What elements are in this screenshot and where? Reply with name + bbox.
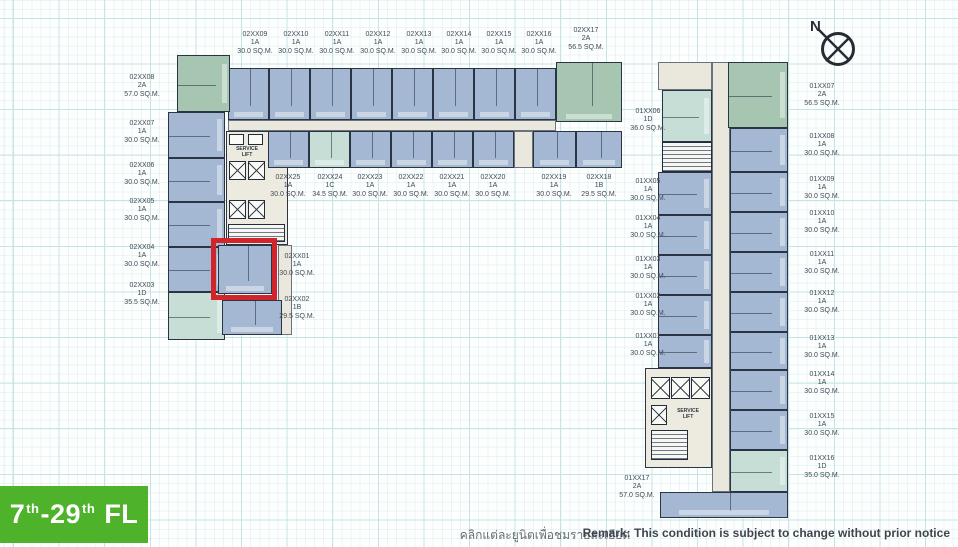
unit-type-text: 1A: [434, 182, 469, 190]
unit-id-text: 01XX14: [804, 371, 839, 379]
unit-type-text: 1A: [630, 264, 665, 272]
unit-01XX15[interactable]: [730, 410, 788, 450]
unit-area-text: 30.0 SQ.M.: [124, 137, 159, 145]
unit-id-text: 01XX02: [630, 293, 665, 301]
lift-icon: [248, 200, 265, 219]
lift-icon: [651, 405, 667, 425]
unit-02XX11[interactable]: [310, 68, 351, 120]
unit-id-text: 01XX12: [804, 290, 839, 298]
unit-area-text: 30.0 SQ.M.: [124, 261, 159, 269]
unit-id-text: 02XX16: [521, 31, 556, 39]
unit-label-02XX13[interactable]: 02XX131A30.0 SQ.M.: [401, 31, 436, 56]
remark-text: Remark: This condition is subject to cha…: [583, 526, 950, 540]
unit-label-01XX16[interactable]: 01XX161D35.0 SQ.M.: [804, 455, 839, 480]
unit-type-text: 1D: [124, 290, 159, 298]
unit-label-01XX01[interactable]: 01XX011A30.0 SQ.M.: [630, 333, 665, 358]
unit-area-text: 30.0 SQ.M.: [804, 307, 839, 315]
unit-area-text: 29.5 SQ.M.: [279, 313, 314, 321]
unit-label-02XX21[interactable]: 02XX211A30.0 SQ.M.: [434, 174, 469, 199]
unit-type-text: 2A: [568, 35, 603, 43]
lift-icon: [229, 161, 246, 180]
unit-area-text: 30.0 SQ.M.: [804, 193, 839, 201]
unit-02XX18[interactable]: [576, 131, 622, 168]
unit-01XX02[interactable]: [658, 295, 712, 335]
selected-unit-highlight: [211, 238, 277, 300]
unit-area-text: 30.0 SQ.M.: [270, 191, 305, 199]
unit-02XX15[interactable]: [474, 68, 515, 120]
unit-type-text: 1A: [630, 341, 665, 349]
unit-01XX10[interactable]: [730, 212, 788, 252]
lift-icon: [229, 200, 246, 219]
unit-label-02XX12[interactable]: 02XX121A30.0 SQ.M.: [360, 31, 395, 56]
unit-label-02XX08[interactable]: 02XX082A57.0 SQ.M.: [124, 74, 159, 99]
unit-type-text: 1A: [804, 298, 839, 306]
unit-id-text: 01XX08: [804, 133, 839, 141]
service-lift-label: SERVICE LIFT: [226, 147, 268, 159]
lift-icon: [691, 377, 710, 399]
unit-label-01XX09[interactable]: 01XX091A30.0 SQ.M.: [804, 176, 839, 201]
unit-label-01XX02[interactable]: 01XX021A30.0 SQ.M.: [630, 293, 665, 318]
unit-type-text: 1A: [475, 182, 510, 190]
entry-building01: [658, 62, 712, 90]
unit-type-text: 1A: [124, 252, 159, 260]
unit-area-text: 30.0 SQ.M.: [804, 430, 839, 438]
unit-label-02XX06[interactable]: 02XX061A30.0 SQ.M.: [124, 162, 159, 187]
shaft-icon: [248, 134, 263, 145]
unit-01XX09[interactable]: [730, 172, 788, 212]
unit-label-01XX11[interactable]: 01XX111A30.0 SQ.M.: [804, 251, 839, 276]
unit-id-text: 02XX18: [581, 174, 616, 182]
unit-area-text: 30.0 SQ.M.: [630, 232, 665, 240]
unit-02XX17[interactable]: [556, 62, 622, 122]
unit-02XX25[interactable]: [268, 131, 309, 168]
unit-02XX16[interactable]: [515, 68, 556, 120]
unit-label-01XX05[interactable]: 01XX051A30.0 SQ.M.: [630, 178, 665, 203]
unit-id-text: 02XX01: [279, 253, 314, 261]
unit-id-text: 01XX10: [804, 210, 839, 218]
unit-id-text: 02XX13: [401, 31, 436, 39]
unit-01XX04[interactable]: [658, 215, 712, 255]
unit-area-text: 30.0 SQ.M.: [804, 388, 839, 396]
unit-label-02XX09[interactable]: 02XX091A30.0 SQ.M.: [237, 31, 272, 56]
unit-type-text: 1A: [124, 206, 159, 214]
floor-badge: 7th-29th FL: [0, 486, 148, 543]
unit-02XX09[interactable]: [228, 68, 269, 120]
unit-01XX05[interactable]: [658, 172, 712, 215]
unit-area-text: 30.0 SQ.M.: [360, 48, 395, 56]
unit-label-02XX04[interactable]: 02XX041A30.0 SQ.M.: [124, 244, 159, 269]
unit-02XX02[interactable]: [222, 300, 282, 335]
unit-label-02XX03[interactable]: 02XX031D35.5 SQ.M.: [124, 282, 159, 307]
unit-label-02XX18[interactable]: 02XX181B29.5 SQ.M.: [581, 174, 616, 199]
unit-label-02XX16[interactable]: 02XX161A30.0 SQ.M.: [521, 31, 556, 56]
unit-type-text: 1A: [804, 141, 839, 149]
unit-id-text: 02XX10: [278, 31, 313, 39]
unit-02XX21[interactable]: [432, 131, 473, 168]
unit-01XX17[interactable]: [660, 492, 788, 518]
unit-id-text: 02XX21: [434, 174, 469, 182]
unit-id-text: 02XX05: [124, 198, 159, 206]
unit-02XX12[interactable]: [351, 68, 392, 120]
unit-id-text: 01XX03: [630, 256, 665, 264]
unit-id-text: 01XX04: [630, 215, 665, 223]
unit-type-text: 1D: [804, 463, 839, 471]
unit-area-text: 30.0 SQ.M.: [804, 352, 839, 360]
unit-area-text: 56.5 SQ.M.: [568, 44, 603, 52]
unit-area-text: 30.0 SQ.M.: [536, 191, 571, 199]
unit-label-01XX03[interactable]: 01XX031A30.0 SQ.M.: [630, 256, 665, 281]
unit-type-text: 1A: [804, 421, 839, 429]
north-compass: N: [806, 18, 864, 74]
unit-label-02XX19[interactable]: 02XX191A30.0 SQ.M.: [536, 174, 571, 199]
unit-label-02XX07[interactable]: 02XX071A30.0 SQ.M.: [124, 120, 159, 145]
unit-area-text: 30.0 SQ.M.: [475, 191, 510, 199]
unit-area-text: 36.0 SQ.M.: [630, 125, 665, 133]
unit-01XX14[interactable]: [730, 370, 788, 410]
unit-label-02XX11[interactable]: 02XX111A30.0 SQ.M.: [319, 31, 354, 56]
unit-02XX08[interactable]: [177, 55, 230, 112]
unit-type-text: 2A: [124, 82, 159, 90]
unit-label-01XX07[interactable]: 01XX072A56.5 SQ.M.: [804, 83, 839, 108]
unit-01XX12[interactable]: [730, 292, 788, 332]
unit-label-02XX23[interactable]: 02XX231A30.0 SQ.M.: [352, 174, 387, 199]
unit-01XX07[interactable]: [728, 62, 788, 128]
unit-type-text: 1A: [124, 170, 159, 178]
unit-area-text: 30.0 SQ.M.: [804, 150, 839, 158]
unit-type-text: 1A: [521, 39, 556, 47]
unit-area-text: 30.0 SQ.M.: [393, 191, 428, 199]
unit-label-01XX15[interactable]: 01XX151A30.0 SQ.M.: [804, 413, 839, 438]
unit-02XX22[interactable]: [391, 131, 432, 168]
unit-id-text: 02XX08: [124, 74, 159, 82]
unit-id-text: 02XX06: [124, 162, 159, 170]
unit-label-01XX06[interactable]: 01XX061D36.0 SQ.M.: [630, 108, 665, 133]
unit-02XX13[interactable]: [392, 68, 433, 120]
unit-id-text: 02XX17: [568, 27, 603, 35]
shaft-icon: [229, 134, 244, 145]
unit-type-text: 1A: [237, 39, 272, 47]
corridor-building02: [228, 120, 556, 131]
unit-id-text: 02XX15: [481, 31, 516, 39]
unit-area-text: 30.0 SQ.M.: [521, 48, 556, 56]
unit-type-text: 1A: [536, 182, 571, 190]
unit-id-text: 02XX11: [319, 31, 354, 39]
unit-id-text: 02XX03: [124, 282, 159, 290]
unit-area-text: 30.0 SQ.M.: [278, 48, 313, 56]
unit-id-text: 01XX11: [804, 251, 839, 259]
unit-01XX16[interactable]: [730, 450, 788, 492]
unit-label-02XX24[interactable]: 02XX241C34.5 SQ.M.: [312, 174, 347, 199]
unit-01XX11[interactable]: [730, 252, 788, 292]
compass-icon: [812, 22, 864, 74]
unit-label-02XX14[interactable]: 02XX141A30.0 SQ.M.: [441, 31, 476, 56]
unit-area-text: 30.0 SQ.M.: [804, 227, 839, 235]
unit-label-02XX10[interactable]: 02XX101A30.0 SQ.M.: [278, 31, 313, 56]
unit-id-text: 02XX07: [124, 120, 159, 128]
unit-01XX03[interactable]: [658, 255, 712, 295]
unit-area-text: 57.0 SQ.M.: [124, 91, 159, 99]
unit-id-text: 02XX19: [536, 174, 571, 182]
unit-area-text: 30.0 SQ.M.: [630, 310, 665, 318]
unit-01XX01[interactable]: [658, 335, 712, 368]
unit-label-02XX25[interactable]: 02XX251A30.0 SQ.M.: [270, 174, 305, 199]
unit-02XX24[interactable]: [309, 131, 350, 168]
unit-type-text: 1A: [804, 343, 839, 351]
unit-type-text: 1B: [581, 182, 616, 190]
unit-label-02XX02[interactable]: 02XX021B29.5 SQ.M.: [279, 296, 314, 321]
lift-lobby-building02: [514, 131, 533, 168]
unit-area-text: 30.0 SQ.M.: [237, 48, 272, 56]
unit-type-text: 1A: [804, 259, 839, 267]
unit-label-02XX17[interactable]: 02XX172A56.5 SQ.M.: [568, 27, 603, 52]
unit-id-text: 01XX06: [630, 108, 665, 116]
unit-area-text: 56.5 SQ.M.: [804, 100, 839, 108]
unit-type-text: 1A: [804, 184, 839, 192]
unit-area-text: 35.0 SQ.M.: [804, 472, 839, 480]
unit-label-01XX12[interactable]: 01XX121A30.0 SQ.M.: [804, 290, 839, 315]
unit-type-text: 1B: [279, 304, 314, 312]
unit-type-text: 1A: [352, 182, 387, 190]
unit-label-01XX04[interactable]: 01XX041A30.0 SQ.M.: [630, 215, 665, 240]
lift-icon: [671, 377, 690, 399]
unit-area-text: 30.0 SQ.M.: [124, 215, 159, 223]
unit-type-text: 1A: [278, 39, 313, 47]
unit-type-text: 1D: [630, 116, 665, 124]
unit-id-text: 02XX14: [441, 31, 476, 39]
lift-icon: [248, 161, 265, 180]
unit-label-02XX20[interactable]: 02XX201A30.0 SQ.M.: [475, 174, 510, 199]
unit-type-text: 2A: [804, 91, 839, 99]
unit-area-text: 30.0 SQ.M.: [279, 270, 314, 278]
unit-type-text: 1A: [804, 379, 839, 387]
unit-type-text: 1A: [481, 39, 516, 47]
unit-area-text: 57.0 SQ.M.: [619, 492, 654, 500]
unit-id-text: 01XX05: [630, 178, 665, 186]
unit-id-text: 02XX09: [237, 31, 272, 39]
unit-area-text: 30.0 SQ.M.: [441, 48, 476, 56]
unit-type-text: 1A: [279, 261, 314, 269]
unit-type-text: 1A: [441, 39, 476, 47]
unit-type-text: 1A: [124, 128, 159, 136]
unit-area-text: 30.0 SQ.M.: [124, 179, 159, 187]
unit-type-text: 1A: [401, 39, 436, 47]
unit-area-text: 30.0 SQ.M.: [630, 273, 665, 281]
unit-label-01XX14[interactable]: 01XX141A30.0 SQ.M.: [804, 371, 839, 396]
unit-id-text: 01XX07: [804, 83, 839, 91]
floor-badge-text: 7th-29th FL: [10, 499, 139, 530]
unit-type-text: 1A: [804, 218, 839, 226]
stairs-icon: [662, 142, 712, 172]
unit-01XX08[interactable]: [730, 128, 788, 172]
unit-type-text: 1C: [312, 182, 347, 190]
unit-type-text: 1A: [393, 182, 428, 190]
unit-area-text: 35.5 SQ.M.: [124, 299, 159, 307]
unit-label-02XX22[interactable]: 02XX221A30.0 SQ.M.: [393, 174, 428, 199]
unit-id-text: 02XX23: [352, 174, 387, 182]
unit-area-text: 30.0 SQ.M.: [319, 48, 354, 56]
unit-02XX07[interactable]: [168, 112, 225, 158]
unit-type-text: 1A: [270, 182, 305, 190]
unit-type-text: 1A: [360, 39, 395, 47]
unit-id-text: 02XX22: [393, 174, 428, 182]
floorplan-page: SERVICE LIFT SERVICE LIFT 02XX091A30.0 S…: [0, 0, 958, 547]
unit-02XX10[interactable]: [269, 68, 310, 120]
unit-type-text: 2A: [619, 483, 654, 491]
unit-02XX23[interactable]: [350, 131, 391, 168]
unit-label-01XX10[interactable]: 01XX101A30.0 SQ.M.: [804, 210, 839, 235]
unit-id-text: 01XX13: [804, 335, 839, 343]
unit-id-text: 02XX25: [270, 174, 305, 182]
unit-id-text: 02XX12: [360, 31, 395, 39]
unit-area-text: 30.0 SQ.M.: [352, 191, 387, 199]
unit-area-text: 30.0 SQ.M.: [481, 48, 516, 56]
unit-area-text: 29.5 SQ.M.: [581, 191, 616, 199]
unit-id-text: 01XX16: [804, 455, 839, 463]
unit-02XX14[interactable]: [433, 68, 474, 120]
unit-02XX20[interactable]: [473, 131, 514, 168]
unit-02XX19[interactable]: [533, 131, 576, 168]
stairs-icon: [651, 430, 688, 460]
unit-label-02XX01[interactable]: 02XX011A30.0 SQ.M.: [279, 253, 314, 278]
unit-id-text: 02XX20: [475, 174, 510, 182]
unit-id-text: 01XX17: [619, 475, 654, 483]
unit-area-text: 30.0 SQ.M.: [630, 195, 665, 203]
unit-type-text: 1A: [630, 223, 665, 231]
unit-02XX06[interactable]: [168, 158, 225, 202]
unit-label-02XX05[interactable]: 02XX051A30.0 SQ.M.: [124, 198, 159, 223]
unit-01XX06[interactable]: [662, 90, 712, 142]
unit-id-text: 01XX15: [804, 413, 839, 421]
lift-icon: [651, 377, 670, 399]
unit-label-01XX17[interactable]: 01XX172A57.0 SQ.M.: [619, 475, 654, 500]
unit-label-01XX13[interactable]: 01XX131A30.0 SQ.M.: [804, 335, 839, 360]
unit-area-text: 30.0 SQ.M.: [401, 48, 436, 56]
floorplan-canvas: SERVICE LIFT SERVICE LIFT 02XX091A30.0 S…: [0, 0, 958, 547]
unit-label-02XX15[interactable]: 02XX151A30.0 SQ.M.: [481, 31, 516, 56]
unit-id-text: 01XX09: [804, 176, 839, 184]
unit-type-text: 1A: [319, 39, 354, 47]
unit-area-text: 30.0 SQ.M.: [804, 268, 839, 276]
service-lift-label: SERVICE LIFT: [668, 409, 708, 421]
unit-id-text: 02XX04: [124, 244, 159, 252]
unit-area-text: 30.0 SQ.M.: [630, 350, 665, 358]
unit-type-text: 1A: [630, 301, 665, 309]
unit-area-text: 34.5 SQ.M.: [312, 191, 347, 199]
unit-id-text: 01XX01: [630, 333, 665, 341]
unit-id-text: 02XX02: [279, 296, 314, 304]
unit-label-01XX08[interactable]: 01XX081A30.0 SQ.M.: [804, 133, 839, 158]
unit-area-text: 30.0 SQ.M.: [434, 191, 469, 199]
unit-id-text: 02XX24: [312, 174, 347, 182]
unit-type-text: 1A: [630, 186, 665, 194]
unit-01XX13[interactable]: [730, 332, 788, 370]
